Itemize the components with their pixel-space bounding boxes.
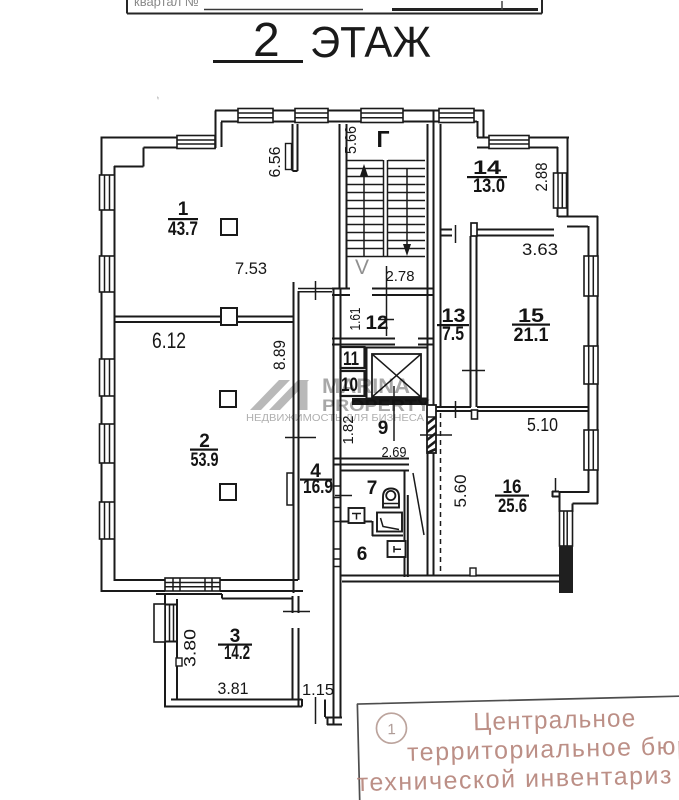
- svg-text:25.6: 25.6: [498, 496, 527, 517]
- svg-text:НЕДВИЖИМОСТЬ ДЛЯ БИЗНЕСА: НЕДВИЖИМОСТЬ ДЛЯ БИЗНЕСА: [246, 412, 424, 424]
- svg-text:7.5: 7.5: [442, 324, 464, 345]
- svg-text:2: 2: [253, 14, 280, 67]
- svg-text:2.88: 2.88: [532, 163, 551, 192]
- svg-text:квартал №: квартал №: [134, 0, 199, 9]
- svg-text:ЭТАЖ: ЭТАЖ: [310, 18, 431, 67]
- svg-text:1.15: 1.15: [302, 682, 334, 699]
- svg-text:5.10: 5.10: [527, 415, 558, 435]
- svg-text:7.53: 7.53: [235, 259, 267, 278]
- svg-text:3.80: 3.80: [181, 629, 200, 667]
- svg-text:21.1: 21.1: [514, 325, 549, 346]
- svg-text:2.78: 2.78: [386, 268, 415, 285]
- svg-text:V: V: [355, 256, 369, 279]
- svg-text:MARINA: MARINA: [322, 375, 410, 398]
- svg-text:13.0: 13.0: [473, 176, 505, 197]
- svg-text:11: 11: [343, 349, 359, 370]
- svg-text:1.61: 1.61: [347, 308, 364, 331]
- svg-text:1: 1: [387, 721, 396, 738]
- svg-text:2.69: 2.69: [382, 444, 407, 461]
- svg-text:6.12: 6.12: [152, 328, 186, 353]
- svg-text:Г: Г: [376, 126, 389, 152]
- svg-text:5.60: 5.60: [451, 475, 470, 508]
- svg-text:6: 6: [357, 544, 368, 565]
- svg-text:16.9: 16.9: [303, 477, 333, 498]
- svg-text:3.63: 3.63: [522, 240, 558, 259]
- svg-text:53.9: 53.9: [191, 450, 219, 471]
- svg-text:5.66: 5.66: [343, 126, 360, 154]
- svg-text:12: 12: [366, 313, 389, 334]
- svg-text:7: 7: [367, 478, 378, 499]
- svg-text:3.81: 3.81: [218, 679, 249, 698]
- svg-text:8.89: 8.89: [270, 340, 289, 370]
- svg-text:14.2: 14.2: [224, 643, 250, 664]
- svg-text:1: 1: [178, 199, 189, 220]
- svg-text:6.56: 6.56: [267, 146, 284, 177]
- svg-text:43.7: 43.7: [168, 219, 198, 240]
- svg-text:Центральное: Центральное: [473, 704, 637, 736]
